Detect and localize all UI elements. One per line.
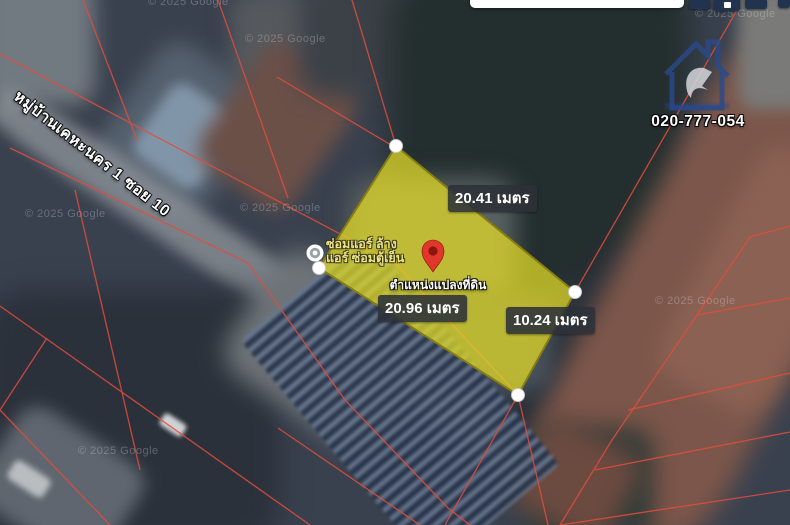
layers-icon [722,2,731,8]
pin-inner-dot [428,246,437,255]
poi-label-line1: ซ่อมแอร์ ล้าง [326,238,404,252]
poi-label-line2: แอร์ ซ่อมตู้เย็น [326,252,404,266]
phone-number: 020-777-054 [643,113,753,131]
dimension-label-top: 20.41 เมตร [448,185,537,212]
map-control-button-2[interactable] [714,0,740,11]
poi-label[interactable]: ซ่อมแอร์ ล้าง แอร์ ซ่อมตู้เย็น [326,238,404,265]
map-control-button-3[interactable] [745,0,767,9]
pin-caption: ตำแหน่งแปลงที่ดิน [378,276,498,295]
search-input[interactable] [470,0,684,8]
corner-marker-bottom [512,389,525,402]
google-watermark: © 2025 Google [78,445,159,457]
corner-marker-right [569,286,582,299]
google-watermark: © 2025 Google [245,33,326,45]
logo-name-bar [665,103,729,109]
google-watermark: © 2025 Google [655,295,736,307]
google-watermark: © 2025 Google [240,202,321,214]
dimension-label-bottom: 20.96 เมตร [378,295,467,322]
dimension-label-right: 10.24 เมตร [506,307,595,334]
google-watermark: © 2025 Google [25,208,106,220]
place-icon[interactable] [307,245,324,262]
land-plot-polygon[interactable] [319,146,575,395]
google-watermark: © 2025 Google [148,0,229,8]
corner-marker-left [313,262,326,275]
map-canvas: หมู่บ้านเคหะนคร 1 ซอย 10 ซ่อมแอร์ ล้าง แ… [0,0,790,525]
map-control-button-1[interactable] [689,0,710,9]
map-control-button-4[interactable] [778,0,790,8]
logo-ribbon [686,68,712,98]
corner-marker-top [390,140,403,153]
